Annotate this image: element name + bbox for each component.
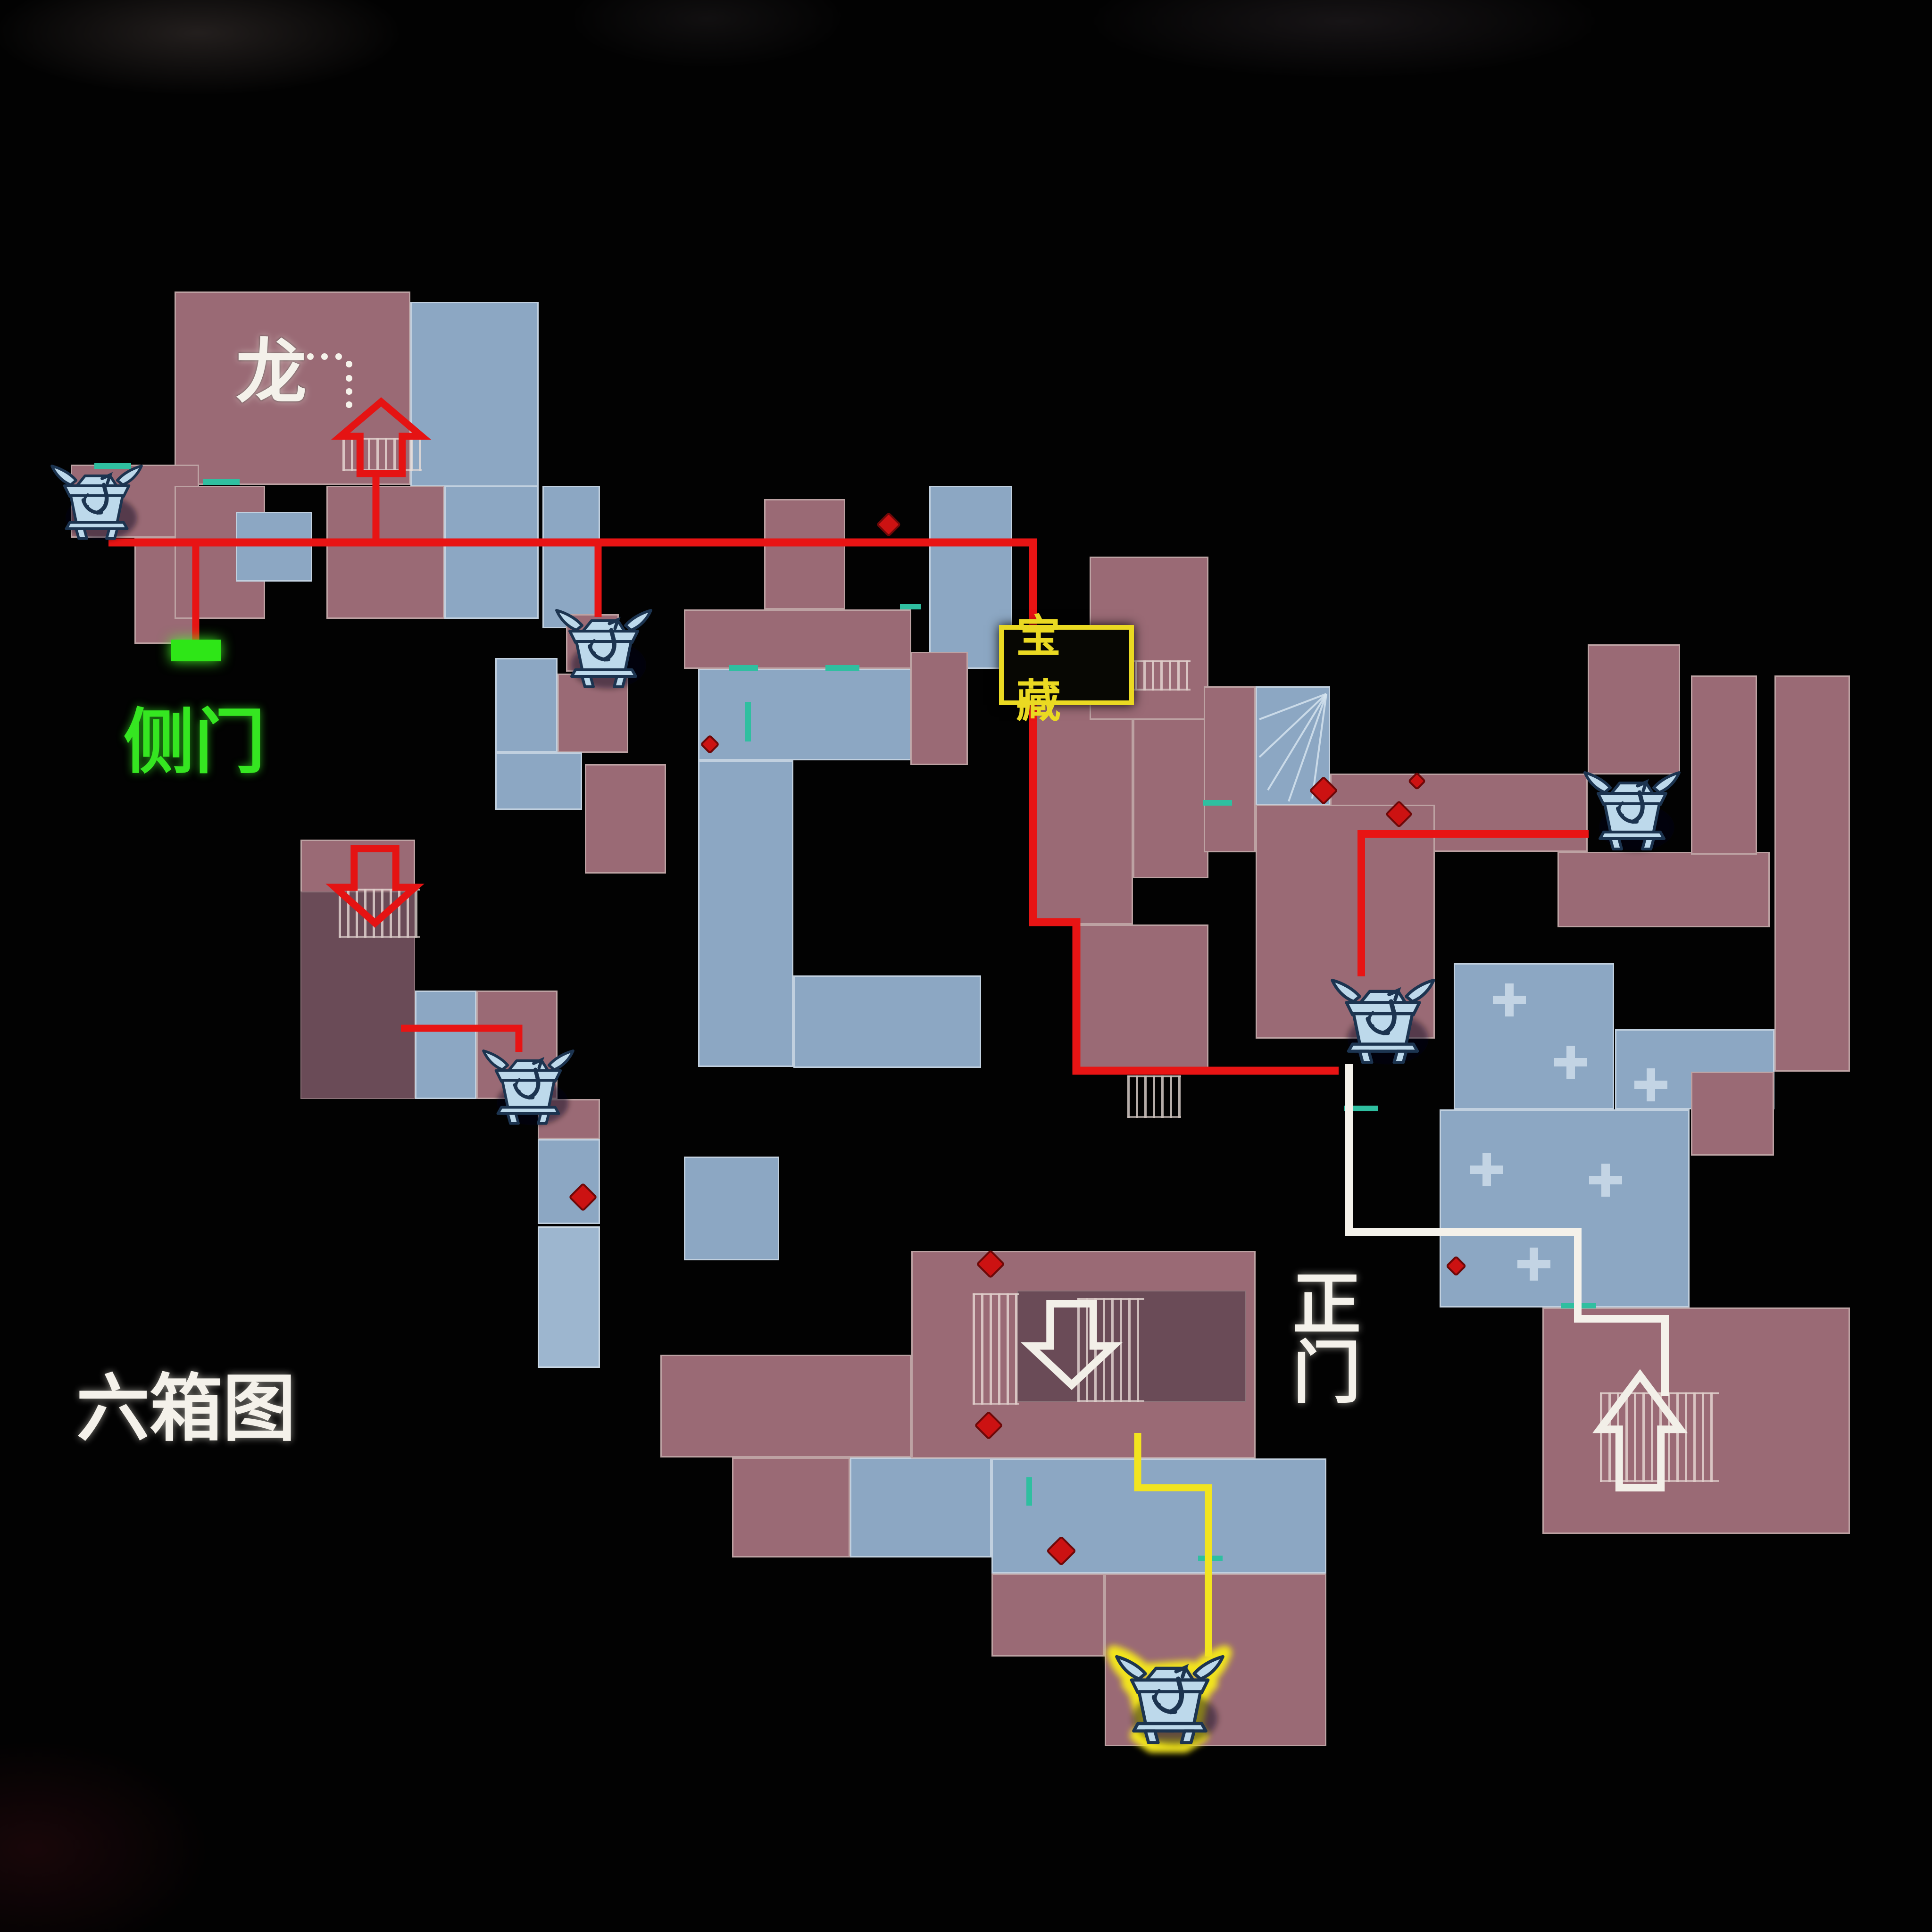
red-up-arrow-icon bbox=[341, 402, 422, 474]
white-down-arrow-icon bbox=[1030, 1304, 1113, 1385]
dotted-trail-dot bbox=[307, 353, 314, 360]
red-diamond-icon bbox=[570, 1184, 597, 1211]
red-diamond-icon bbox=[1409, 773, 1425, 789]
teal-door-marker bbox=[1203, 800, 1232, 806]
route-path bbox=[108, 542, 1339, 1071]
stairs-fan-icon bbox=[1259, 694, 1326, 719]
teal-door-marker bbox=[745, 702, 751, 741]
dotted-trail-dot bbox=[346, 388, 352, 395]
teal-door-marker bbox=[729, 665, 758, 671]
treasure-chest-icon bbox=[483, 1051, 573, 1125]
six-chest-map-title: 六箱图 bbox=[76, 1349, 296, 1455]
teal-door-marker bbox=[203, 479, 240, 485]
wall-cross-icon bbox=[1470, 1153, 1503, 1186]
dotted-trail-dot bbox=[335, 353, 342, 360]
game-map: 龙 侧门 宝藏 正门 六箱图 bbox=[0, 0, 1932, 1932]
route-path bbox=[1138, 1433, 1208, 1657]
side-door-label: 侧门 bbox=[124, 685, 265, 787]
teal-door-marker bbox=[900, 604, 921, 609]
route-path bbox=[1349, 1064, 1665, 1396]
route-path bbox=[401, 1028, 519, 1052]
side-door-marker bbox=[171, 640, 221, 661]
wall-cross-icon bbox=[1589, 1164, 1622, 1197]
dotted-trail-dot bbox=[346, 401, 352, 408]
treasure-label-text: 宝藏 bbox=[1016, 600, 1129, 730]
dotted-trail-dot bbox=[321, 353, 328, 360]
teal-door-marker bbox=[1026, 1477, 1032, 1506]
treasure-chest-icon bbox=[1585, 773, 1679, 851]
treasure-label: 宝藏 bbox=[999, 625, 1134, 705]
treasure-chest-icon bbox=[1114, 1652, 1225, 1746]
red-diamond-icon bbox=[701, 736, 719, 753]
route-path bbox=[1361, 834, 1589, 976]
wall-cross-icon bbox=[1493, 983, 1526, 1016]
wall-cross-icon bbox=[1517, 1248, 1550, 1281]
red-diamond-icon bbox=[977, 1251, 1004, 1278]
treasure-chest-icon bbox=[52, 466, 142, 541]
red-diamond-icon bbox=[877, 513, 900, 536]
red-diamond-icon bbox=[1386, 801, 1412, 827]
red-down-arrow-icon bbox=[335, 849, 415, 923]
red-diamond-icon bbox=[1447, 1257, 1466, 1275]
treasure-chest-icon bbox=[557, 610, 651, 689]
dotted-trail-dot bbox=[346, 375, 352, 382]
teal-door-marker bbox=[825, 665, 859, 671]
dragon-label: 龙 bbox=[236, 315, 307, 417]
treasure-chest-icon bbox=[1332, 980, 1434, 1064]
main-gate-label: 正门 bbox=[1271, 1268, 1370, 1405]
red-diamond-icon bbox=[975, 1412, 1002, 1439]
dotted-trail-dot bbox=[346, 361, 352, 367]
wall-cross-icon bbox=[1634, 1068, 1667, 1101]
teal-door-marker bbox=[94, 463, 131, 469]
wall-cross-icon bbox=[1554, 1046, 1587, 1079]
red-diamond-icon bbox=[1047, 1537, 1075, 1565]
